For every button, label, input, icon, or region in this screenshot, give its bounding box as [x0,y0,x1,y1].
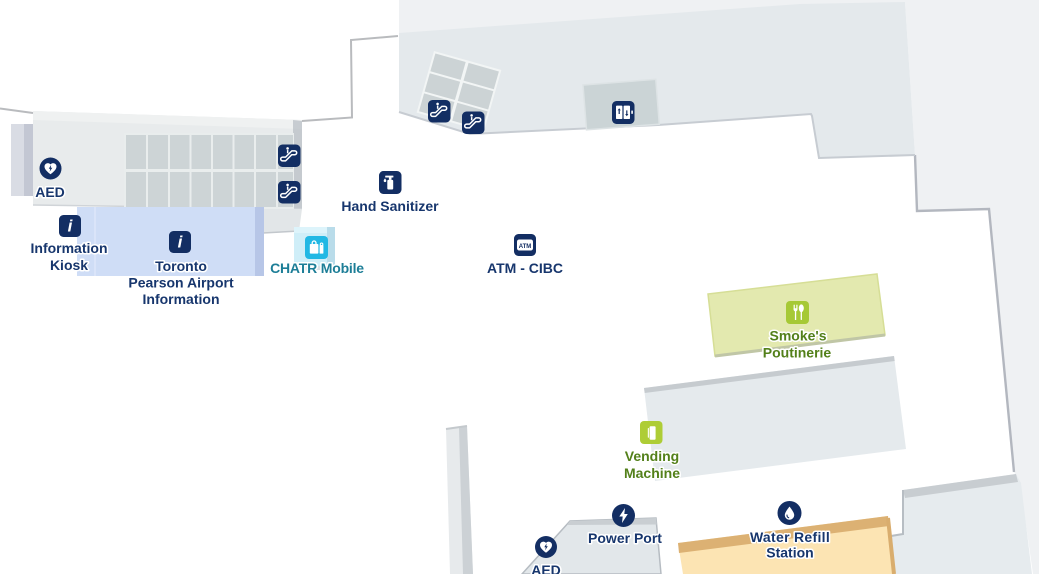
svg-text:Information: Information [31,240,108,256]
svg-text:Vending: Vending [625,448,679,464]
svg-text:Poutinerie: Poutinerie [763,345,832,361]
svg-text:Toronto: Toronto [155,258,207,274]
svg-text:Machine: Machine [624,465,680,481]
svg-text:ATM: ATM [519,244,532,250]
svg-text:Station: Station [766,545,813,561]
svg-text:Water Refill: Water Refill [750,529,830,545]
svg-text:AED: AED [35,184,65,200]
svg-text:Pearson Airport: Pearson Airport [128,275,234,291]
svg-text:Kiosk: Kiosk [50,257,88,273]
svg-text:Power Port: Power Port [588,530,662,546]
svg-text:AED: AED [531,562,561,574]
svg-text:CHATR Mobile: CHATR Mobile [270,260,364,276]
svg-text:Information: Information [143,291,220,307]
svg-text:ATM - CIBC: ATM - CIBC [487,260,563,276]
svg-text:Smoke's: Smoke's [769,328,826,344]
svg-text:Hand Sanitizer: Hand Sanitizer [341,198,439,214]
